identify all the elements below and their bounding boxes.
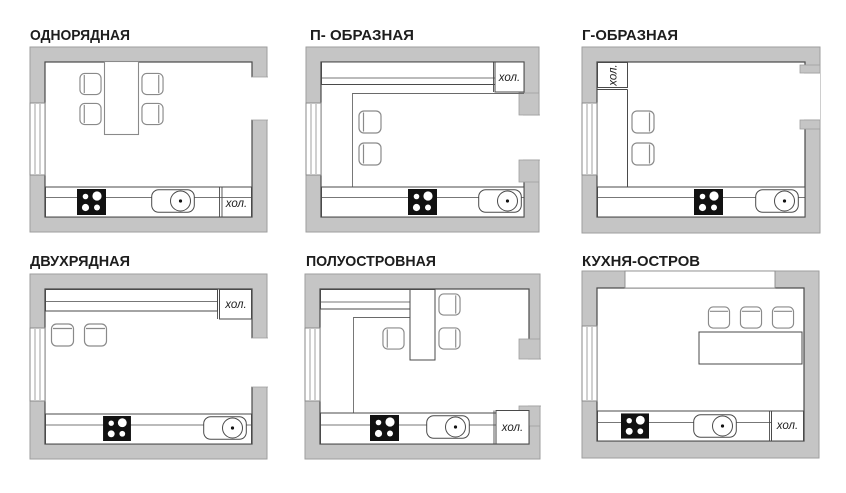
chair-icon <box>383 328 404 349</box>
window-icon <box>582 326 597 401</box>
island-counter <box>699 332 802 364</box>
fridge: хол. <box>770 411 804 441</box>
fridge: хол. <box>494 62 525 92</box>
window-icon <box>30 328 45 401</box>
fridge: хол. <box>218 290 252 320</box>
door-opening <box>251 338 269 387</box>
panel-u-shaped: П- ОБРАЗНАЯ <box>282 0 564 246</box>
panel-peninsula: ПОЛУОСТРОВНАЯ <box>282 246 564 493</box>
floorplan-island: КУХНЯ-ОСТРОВ <box>564 246 846 493</box>
sink-icon <box>479 190 522 213</box>
stove-icon <box>370 415 399 441</box>
panel-double-row: ДВУХРЯДНАЯ <box>0 246 282 493</box>
dining-table <box>105 62 139 135</box>
fridge: хол. <box>598 63 628 90</box>
door-opening <box>251 77 269 120</box>
stove-icon <box>408 189 437 215</box>
chair-icon <box>708 307 729 328</box>
fridge-label: хол. <box>225 198 247 210</box>
fridge-label: хол. <box>501 422 523 434</box>
counter <box>46 187 252 217</box>
kitchen-layouts-diagram: ОДНОРЯДНАЯ <box>0 0 846 493</box>
panel-title: КУХНЯ-ОСТРОВ <box>582 253 700 270</box>
chair-icon <box>740 307 761 328</box>
chair-icon <box>632 111 654 133</box>
panel-single-row: ОДНОРЯДНАЯ <box>0 0 282 246</box>
chair-icon <box>80 73 101 94</box>
window-icon <box>305 328 320 401</box>
chair-icon <box>142 103 163 124</box>
sink-icon <box>152 190 195 213</box>
floorplan-peninsula: ПОЛУОСТРОВНАЯ <box>282 246 564 493</box>
sink-icon <box>204 417 247 440</box>
sink-icon <box>427 416 470 439</box>
fridge-label: хол. <box>776 420 798 432</box>
stove-icon <box>621 413 649 438</box>
peninsula-counter <box>410 290 435 361</box>
chair-icon <box>439 294 460 315</box>
chair-icon <box>439 328 460 349</box>
chair-icon <box>85 324 107 346</box>
fridge-label: хол. <box>224 299 246 311</box>
stove-icon <box>103 416 131 441</box>
fridge-label: хол. <box>498 72 520 84</box>
floorplan-l-shaped: Г-ОБРАЗНАЯ <box>564 0 846 246</box>
floorplan-double-row: ДВУХРЯДНАЯ <box>0 246 282 493</box>
window-icon <box>30 103 45 175</box>
chair-icon <box>80 103 101 124</box>
stove-icon <box>77 189 106 215</box>
window-icon <box>306 103 321 175</box>
chair-icon <box>359 111 381 133</box>
panel-title: Г-ОБРАЗНАЯ <box>582 27 678 44</box>
floorplan-single-row: ОДНОРЯДНАЯ <box>0 0 282 246</box>
panel-l-shaped: Г-ОБРАЗНАЯ <box>564 0 846 246</box>
fridge: хол. <box>494 411 529 445</box>
chair-icon <box>142 73 163 94</box>
chair-icon <box>359 143 381 165</box>
panel-title: ДВУХРЯДНАЯ <box>30 253 130 270</box>
panel-title: ПОЛУОСТРОВНАЯ <box>306 253 436 270</box>
floorplan-u-shaped: П- ОБРАЗНАЯ <box>282 0 564 246</box>
chair-icon <box>632 143 654 165</box>
chair-icon <box>52 324 74 346</box>
sink-icon <box>756 190 799 213</box>
panel-title: ОДНОРЯДНАЯ <box>30 27 130 44</box>
sink-icon <box>694 415 737 438</box>
window-icon <box>582 103 597 175</box>
stove-icon <box>694 189 723 215</box>
fridge-label: хол. <box>608 64 620 86</box>
chair-icon <box>772 307 793 328</box>
panel-island: КУХНЯ-ОСТРОВ <box>564 246 846 493</box>
panel-title: П- ОБРАЗНАЯ <box>310 27 414 44</box>
wall-opening <box>625 271 775 288</box>
